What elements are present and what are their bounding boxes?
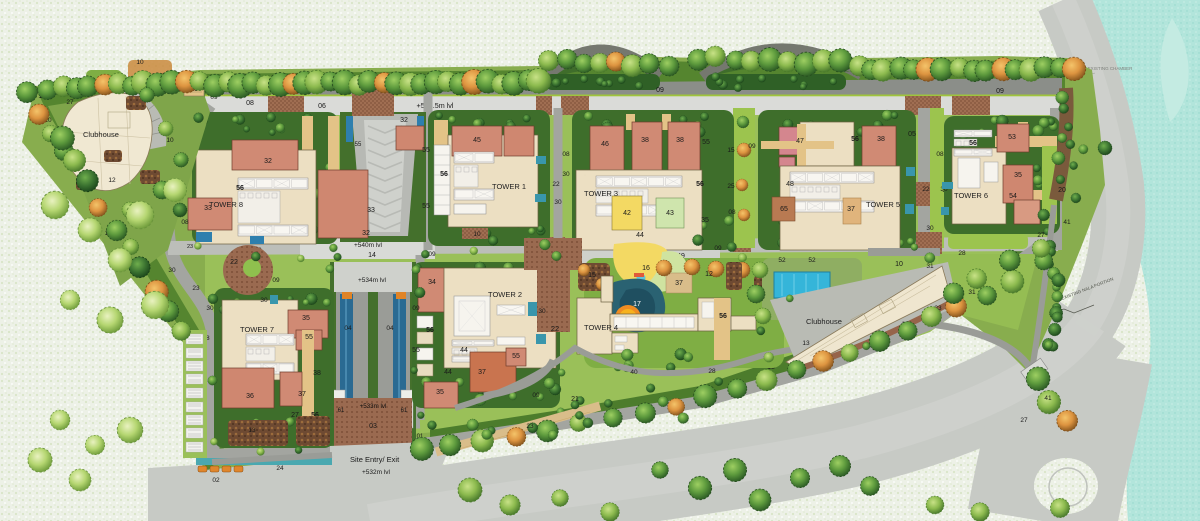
svg-text:37: 37 <box>675 280 683 287</box>
svg-text:22: 22 <box>922 186 930 193</box>
svg-text:09: 09 <box>532 392 540 399</box>
svg-text:TOWER 8: TOWER 8 <box>209 200 243 209</box>
svg-text:22: 22 <box>551 324 559 333</box>
svg-text:10: 10 <box>136 59 144 66</box>
svg-text:56: 56 <box>236 185 244 192</box>
svg-text:+540m lvl: +540m lvl <box>354 242 383 249</box>
svg-text:23: 23 <box>192 285 200 292</box>
svg-text:30: 30 <box>538 308 546 315</box>
svg-text:24: 24 <box>276 465 284 472</box>
svg-text:28: 28 <box>708 368 716 375</box>
svg-text:02: 02 <box>212 477 220 484</box>
svg-text:TOWER 2: TOWER 2 <box>488 290 522 299</box>
svg-text:56: 56 <box>851 136 859 143</box>
svg-text:56: 56 <box>719 313 727 320</box>
svg-text:30: 30 <box>168 267 176 274</box>
svg-text:23: 23 <box>526 423 534 430</box>
svg-text:06: 06 <box>318 103 326 110</box>
svg-text:37: 37 <box>478 369 486 376</box>
svg-text:23: 23 <box>187 244 193 250</box>
svg-text:55: 55 <box>512 353 520 360</box>
svg-text:32: 32 <box>400 117 408 124</box>
svg-text:+533m lvl: +533m lvl <box>360 403 387 410</box>
svg-text:61: 61 <box>338 408 345 414</box>
svg-text:15: 15 <box>727 147 735 154</box>
svg-text:42: 42 <box>623 210 631 217</box>
svg-text:30: 30 <box>562 171 570 178</box>
svg-text:40: 40 <box>630 369 638 376</box>
svg-text:16: 16 <box>642 265 650 272</box>
svg-text:65: 65 <box>780 206 788 213</box>
svg-text:56: 56 <box>696 181 704 188</box>
svg-text:30: 30 <box>260 297 268 304</box>
svg-text:30: 30 <box>926 225 934 232</box>
svg-text:37: 37 <box>298 391 306 398</box>
svg-text:08: 08 <box>562 151 570 158</box>
svg-text:15: 15 <box>588 272 596 279</box>
svg-text:13: 13 <box>802 340 810 347</box>
svg-text:47: 47 <box>796 138 804 145</box>
svg-text:55: 55 <box>422 203 430 210</box>
svg-text:34: 34 <box>428 279 436 286</box>
svg-text:09: 09 <box>656 87 664 94</box>
svg-text:04: 04 <box>344 325 352 332</box>
svg-text:35: 35 <box>302 315 310 322</box>
svg-text:28: 28 <box>958 250 966 257</box>
svg-text:20: 20 <box>1058 187 1066 194</box>
svg-text:05: 05 <box>908 131 916 138</box>
svg-text:55: 55 <box>422 147 430 154</box>
svg-text:30: 30 <box>554 199 562 206</box>
svg-text:53: 53 <box>1008 134 1016 141</box>
svg-text:09: 09 <box>714 245 722 252</box>
svg-text:09: 09 <box>748 143 756 150</box>
svg-text:22: 22 <box>552 181 560 188</box>
svg-text:46: 46 <box>601 141 609 148</box>
svg-text:31: 31 <box>968 289 976 296</box>
svg-text:03: 03 <box>369 423 377 430</box>
svg-text:52: 52 <box>778 257 786 264</box>
svg-text:56: 56 <box>969 140 977 147</box>
svg-text:44: 44 <box>460 347 468 354</box>
svg-text:27: 27 <box>1020 417 1028 424</box>
svg-text:21: 21 <box>571 396 579 403</box>
svg-text:52: 52 <box>808 257 816 264</box>
svg-text:45: 45 <box>473 137 481 144</box>
svg-text:13: 13 <box>248 427 256 434</box>
svg-text:61: 61 <box>401 408 408 414</box>
svg-text:Clubhouse: Clubhouse <box>83 130 119 139</box>
svg-text:TOWER 1: TOWER 1 <box>492 182 526 191</box>
svg-text:17: 17 <box>633 301 641 308</box>
svg-text:10: 10 <box>166 137 174 144</box>
svg-text:09: 09 <box>996 88 1004 95</box>
svg-text:+532m lvl: +532m lvl <box>362 469 391 476</box>
svg-text:35: 35 <box>701 217 709 224</box>
svg-text:38: 38 <box>641 137 649 144</box>
svg-text:08: 08 <box>728 209 736 216</box>
svg-text:55: 55 <box>355 142 362 148</box>
svg-text:08: 08 <box>246 100 254 107</box>
svg-text:38: 38 <box>313 370 321 377</box>
svg-text:32: 32 <box>362 230 370 237</box>
svg-text:12: 12 <box>705 271 713 278</box>
svg-text:54: 54 <box>1009 193 1017 200</box>
svg-text:04: 04 <box>386 325 394 332</box>
svg-text:55: 55 <box>305 334 313 341</box>
svg-text:14: 14 <box>368 252 376 259</box>
svg-text:TOWER 7: TOWER 7 <box>240 325 274 334</box>
svg-text:TOWER 5: TOWER 5 <box>866 200 900 209</box>
svg-text:22: 22 <box>230 259 238 266</box>
svg-text:35: 35 <box>1014 172 1022 179</box>
svg-text:25: 25 <box>727 183 735 190</box>
svg-text:27: 27 <box>1037 232 1045 239</box>
svg-text:27: 27 <box>66 99 74 106</box>
svg-text:44: 44 <box>444 369 452 376</box>
svg-text:10: 10 <box>473 231 481 238</box>
svg-text:35: 35 <box>436 389 444 396</box>
svg-text:EXISTING CHAMBER: EXISTING CHAMBER <box>1088 66 1134 71</box>
svg-text:TOWER 4: TOWER 4 <box>584 323 618 332</box>
svg-text:56: 56 <box>440 171 448 178</box>
svg-text:43: 43 <box>666 210 674 217</box>
svg-text:Clubhouse: Clubhouse <box>806 317 842 326</box>
svg-text:38: 38 <box>676 137 684 144</box>
svg-text:56: 56 <box>426 327 434 334</box>
svg-text:+534m lvl: +534m lvl <box>358 277 387 284</box>
svg-text:41: 41 <box>1044 395 1052 402</box>
svg-text:38: 38 <box>877 136 885 143</box>
svg-text:55: 55 <box>412 347 420 354</box>
svg-text:08: 08 <box>936 151 944 158</box>
svg-text:08: 08 <box>181 219 189 226</box>
svg-text:36: 36 <box>246 393 254 400</box>
svg-text:31: 31 <box>926 263 934 270</box>
svg-text:55: 55 <box>702 139 710 146</box>
svg-text:TOWER 3: TOWER 3 <box>584 189 618 198</box>
svg-text:TOWER 6: TOWER 6 <box>954 191 988 200</box>
svg-text:48: 48 <box>786 181 794 188</box>
svg-text:10: 10 <box>895 261 903 268</box>
svg-text:30: 30 <box>206 305 214 312</box>
svg-text:12: 12 <box>108 177 116 184</box>
svg-text:+538.5m lvl: +538.5m lvl <box>417 101 454 110</box>
svg-text:44: 44 <box>636 232 644 239</box>
svg-text:32: 32 <box>264 158 272 165</box>
svg-text:41: 41 <box>1063 219 1071 226</box>
svg-text:Site Entry/ Exit: Site Entry/ Exit <box>350 455 400 464</box>
svg-text:09: 09 <box>412 305 420 312</box>
svg-text:37: 37 <box>847 206 855 213</box>
svg-text:33: 33 <box>367 207 375 214</box>
svg-text:09: 09 <box>272 277 280 284</box>
